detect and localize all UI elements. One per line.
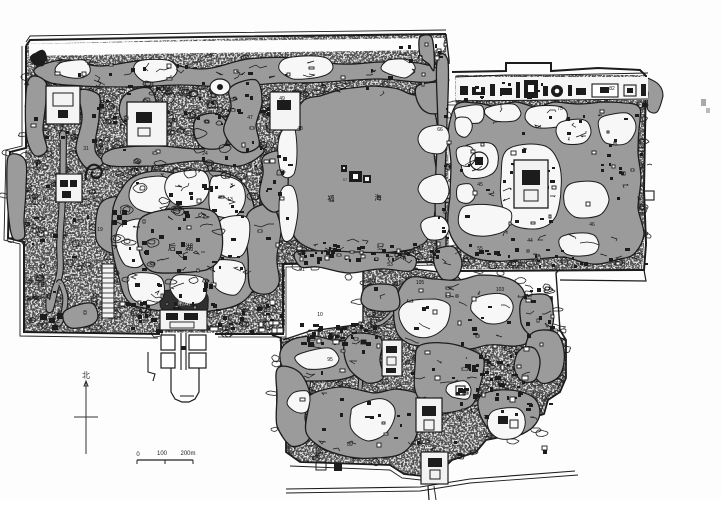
svg-text:200m: 200m [180,451,195,457]
svg-text:51: 51 [299,267,305,273]
svg-text:81: 81 [457,417,463,423]
svg-text:13: 13 [227,197,233,203]
svg-text:105: 105 [416,280,425,286]
svg-text:后: 后 [168,242,176,252]
svg-text:103: 103 [496,287,505,293]
svg-text:前湖: 前湖 [178,299,190,307]
svg-text:57: 57 [343,177,348,182]
svg-text:31: 31 [83,146,89,152]
svg-text:28: 28 [42,196,48,202]
svg-text:90: 90 [637,196,643,202]
svg-text:46: 46 [589,222,595,228]
svg-text:47: 47 [247,115,253,121]
svg-text:7: 7 [249,312,252,318]
svg-text:44: 44 [527,238,533,244]
svg-text:100: 100 [157,451,168,457]
svg-text:福: 福 [328,194,335,203]
svg-text:34: 34 [59,124,65,130]
svg-text:16: 16 [67,296,73,302]
svg-text:25: 25 [177,126,183,132]
svg-text:19: 19 [97,227,103,233]
svg-text:海: 海 [375,193,382,202]
svg-text:5: 5 [149,312,152,318]
svg-text:30: 30 [177,86,183,92]
svg-text:82: 82 [609,86,615,92]
svg-text:36: 36 [57,59,63,65]
svg-text:45: 45 [477,182,483,188]
svg-text:97: 97 [359,327,365,333]
svg-text:24: 24 [202,151,208,157]
svg-text:95: 95 [327,357,333,363]
svg-text:湖: 湖 [185,243,193,252]
svg-text:75: 75 [557,106,563,112]
svg-text:43: 43 [417,55,423,61]
svg-text:33: 33 [123,116,129,122]
svg-text:48: 48 [297,126,303,132]
svg-text:89: 89 [347,442,353,448]
svg-text:北: 北 [82,371,90,380]
svg-text:53: 53 [387,262,393,268]
svg-text:66: 66 [437,127,443,133]
svg-text:49: 49 [279,96,285,102]
svg-text:52: 52 [377,246,383,252]
svg-text:10: 10 [317,312,323,318]
svg-text:55: 55 [477,246,483,252]
